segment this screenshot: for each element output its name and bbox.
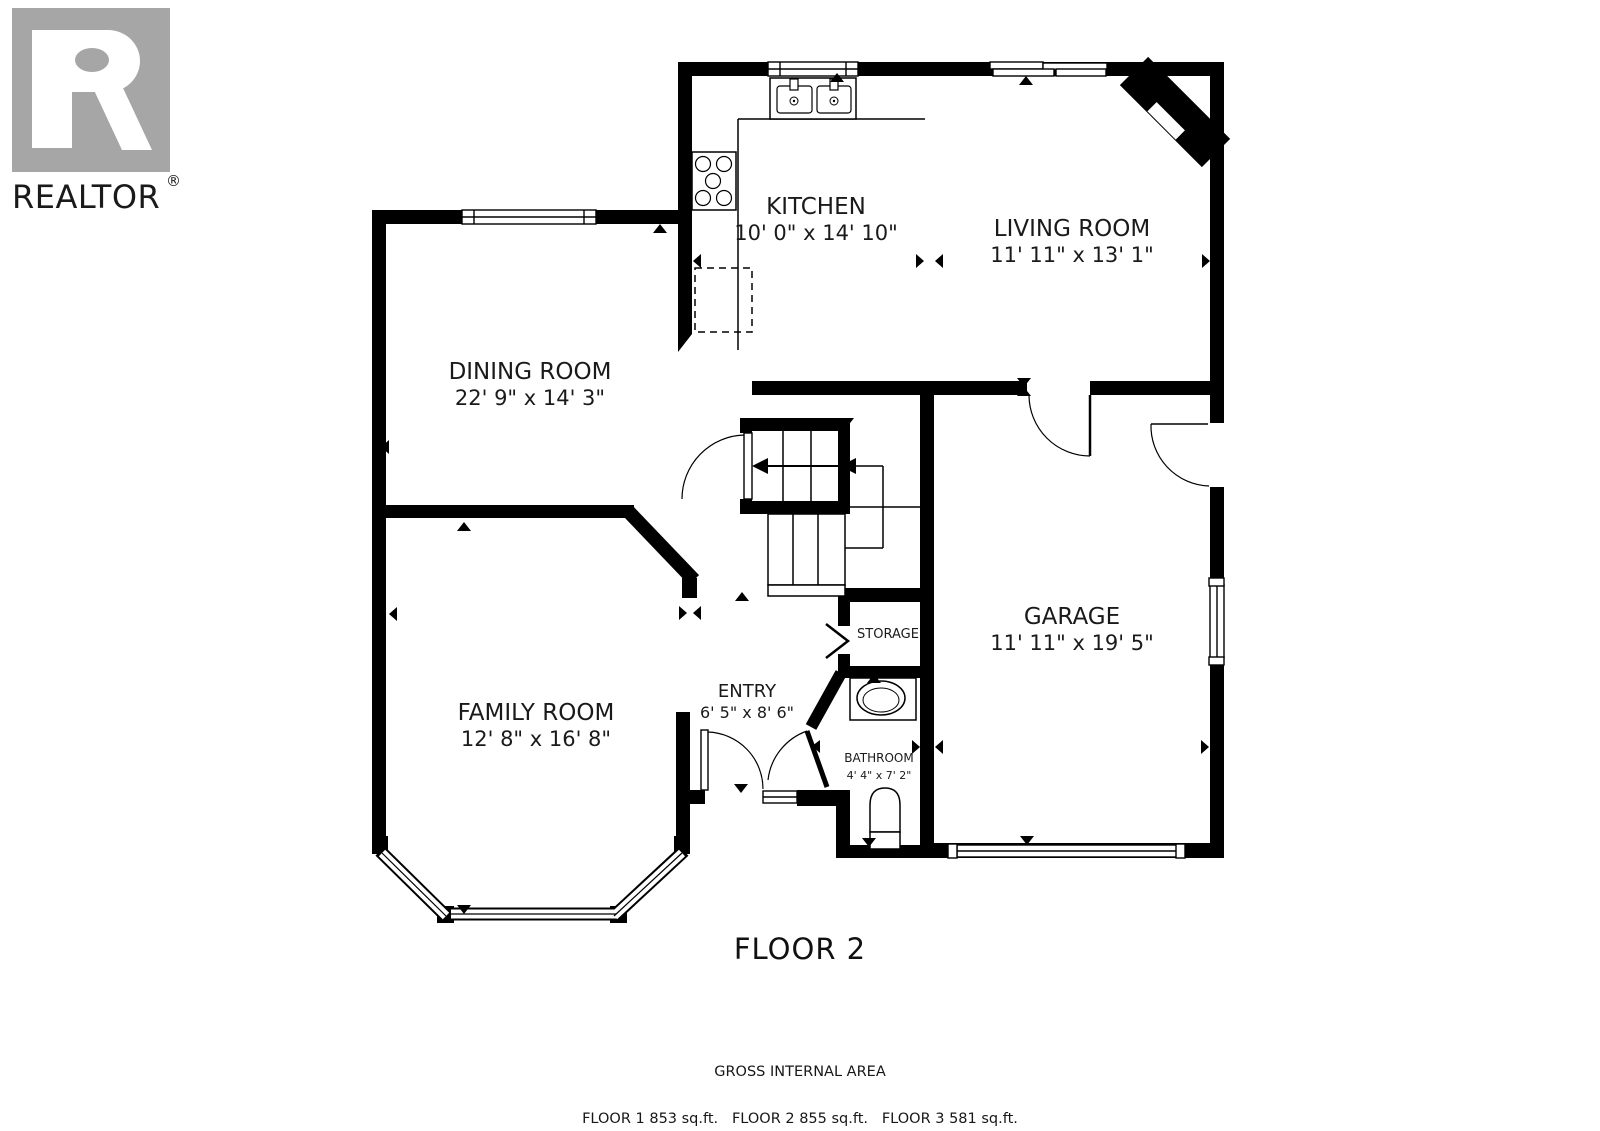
entry-sidelight-window [763,791,797,803]
living-room-windows [990,62,1107,76]
room-label-entry: ENTRY [718,681,777,702]
floor-title: FLOOR 2 [0,932,1600,966]
room-dims-kitchen: 10' 0" x 14' 10" [734,221,898,245]
realtor-logo: REALTOR ® [12,8,181,216]
room-label-family-room: FAMILY ROOM [458,700,615,726]
room-dims-entry: 6' 5" x 8' 6" [700,703,794,722]
bathroom-door [768,731,827,787]
room-dims-garage: 11' 11" x 19' 5" [990,631,1154,655]
room-dims-living-room: 11' 11" x 13' 1" [990,243,1154,267]
room-label-garage: GARAGE [1024,604,1120,630]
stove-icon [692,152,736,210]
room-dims-family-room: 12' 8" x 16' 8" [461,727,611,751]
area-summary: GROSS INTERNAL AREA FLOOR 1 853 sq.ft. F… [0,1034,1600,1131]
room-dims-bathroom: 4' 4" x 7' 2" [847,769,912,782]
garage-side-window [1209,578,1224,665]
bathroom-sink-icon [850,678,916,720]
bay-window [380,851,684,917]
storage-bifold-door [826,624,848,658]
dashed-appliance-outline [695,268,752,332]
summary-floors-line: FLOOR 1 853 sq.ft. FLOOR 2 855 sq.ft. FL… [0,1112,1600,1128]
room-label-bathroom: BATHROOM [844,751,913,765]
door-openings [1027,381,1224,487]
realtor-wordmark: REALTOR [12,178,160,216]
registered-trademark-icon: ® [166,172,181,190]
kitchen-window [768,62,858,76]
room-label-storage: STORAGE [857,627,919,642]
summary-title: GROSS INTERNAL AREA [0,1065,1600,1081]
kitchen-sink-icon [770,78,856,119]
garage-rear-window [948,844,1185,858]
dining-window [462,210,596,224]
room-dims-dining-room: 22' 9" x 14' 3" [455,386,605,410]
room-label-living-room: LIVING ROOM [994,216,1151,242]
floorplan-page: REALTOR ® [0,0,1600,1131]
garage-interior-door [1029,395,1090,456]
front-door [701,730,763,790]
room-label-kitchen: KITCHEN [766,194,866,220]
garage-side-door [1151,424,1209,486]
room-label-dining-room: DINING ROOM [449,359,612,385]
